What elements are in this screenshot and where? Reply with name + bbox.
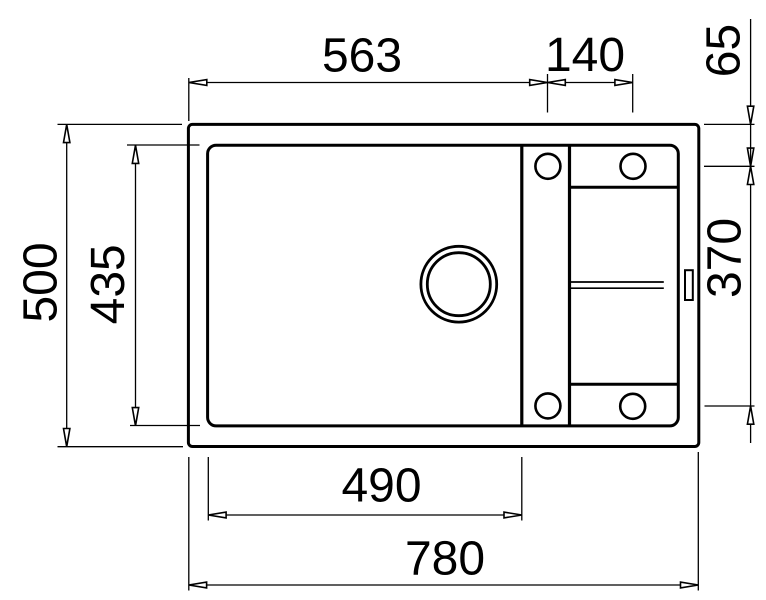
svg-text:500: 500 bbox=[15, 242, 68, 322]
svg-text:780: 780 bbox=[405, 533, 485, 586]
svg-text:65: 65 bbox=[698, 24, 751, 77]
svg-text:140: 140 bbox=[545, 29, 625, 82]
svg-text:435: 435 bbox=[82, 244, 135, 324]
svg-text:563: 563 bbox=[322, 30, 402, 83]
svg-text:370: 370 bbox=[699, 218, 752, 298]
svg-text:490: 490 bbox=[341, 460, 421, 513]
